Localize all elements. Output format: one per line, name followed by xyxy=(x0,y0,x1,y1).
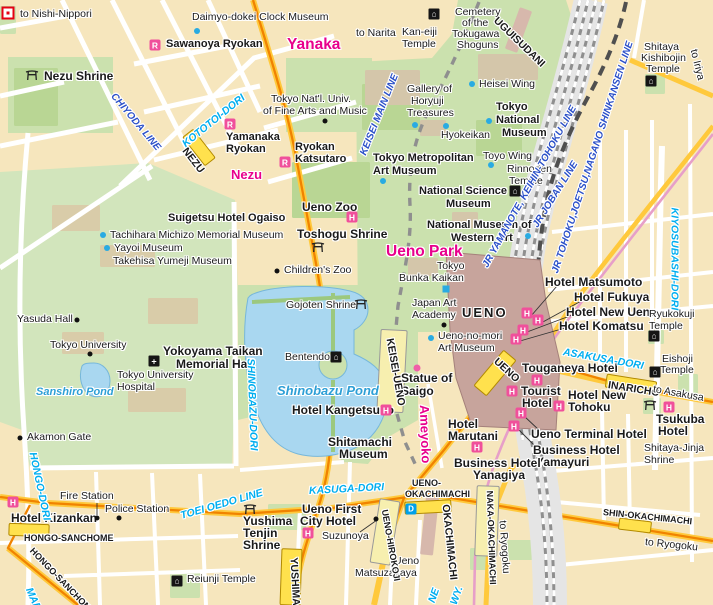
map-label: Hospital xyxy=(117,382,155,393)
museum-dot-icon xyxy=(525,233,531,239)
map-label: Gallery of xyxy=(407,84,452,95)
map-label: Temple xyxy=(660,365,694,376)
landmark-dot-icon xyxy=(95,516,100,521)
museum-dot-icon xyxy=(194,28,200,34)
temple-icon: ⌂ xyxy=(650,367,661,378)
map-label: Temple xyxy=(646,64,680,75)
map-label: Yasuda Hall xyxy=(17,314,73,325)
map-label: Temple xyxy=(402,39,436,50)
map-label: Hotel New Ueno xyxy=(566,306,657,319)
map-label: Hotel Fukuya xyxy=(574,291,649,304)
map-label: Tachihara Michizo Memorial Museum xyxy=(110,230,283,241)
hotel-icon: H xyxy=(664,402,675,413)
hotel-icon: H xyxy=(516,408,527,419)
hotel-icon: H xyxy=(522,308,533,319)
map-label: Shrine xyxy=(644,455,674,466)
shrine-torii-icon xyxy=(644,400,657,411)
map-label: to Narita xyxy=(356,28,396,39)
landmark-dot-icon xyxy=(88,352,93,357)
map-label: to Nishi-Nippori xyxy=(20,9,92,20)
museum-dot-icon xyxy=(488,162,494,168)
map-label: Ueno-no-mori xyxy=(438,331,502,342)
map-label: Reiunji Temple xyxy=(187,574,256,585)
map-label: Tokyo University xyxy=(50,340,126,351)
map-label: Ameyoko xyxy=(417,405,433,464)
map-label: Tokyo xyxy=(437,261,464,272)
ryokan-icon: R xyxy=(150,40,161,51)
map-label: Bentendo xyxy=(285,352,330,363)
map-label: Toshogu Shrine xyxy=(297,228,387,241)
map-label: Hotel xyxy=(658,425,688,438)
map-label: Nezu Shrine xyxy=(44,70,113,83)
museum-dot-icon xyxy=(380,178,386,184)
map-label: to Ryogoku xyxy=(497,520,512,574)
map-label: Shinobazu Pond xyxy=(277,384,379,398)
map-label: Gojoten Shrine xyxy=(286,300,356,311)
temple-icon: ⌂ xyxy=(510,186,521,197)
map-label: Tokyo xyxy=(496,102,528,114)
landmark-dot-icon xyxy=(75,318,80,323)
map-label: Museum xyxy=(339,448,388,461)
map-label: Japan Art xyxy=(412,298,456,309)
shrine-torii-icon xyxy=(244,504,257,515)
map-label: of Fine Arts and Music xyxy=(263,106,367,117)
map-label: Ryokan xyxy=(295,142,335,154)
temple-icon: ⌂ xyxy=(646,76,657,87)
rail-logo-icon xyxy=(2,7,15,20)
map-label: City Hotel xyxy=(300,515,356,528)
shrine-torii-icon xyxy=(355,299,368,310)
museum-dot-icon xyxy=(443,123,449,129)
ueno-area-map: to Nishi-NipporiDaimyo-dokei Clock Museu… xyxy=(0,0,713,605)
map-label: Shrine xyxy=(243,539,280,552)
hotel-icon: H xyxy=(472,442,483,453)
map-label: Nezu xyxy=(231,168,262,182)
temple-icon: ⌂ xyxy=(172,576,183,587)
station-label: HONGO-SANCHOME xyxy=(24,534,114,543)
map-label: National Science xyxy=(419,186,507,198)
map-label: Yayoi Museum xyxy=(114,243,183,254)
map-label: Statue of xyxy=(401,372,452,385)
map-label: Yanagiya xyxy=(473,469,525,482)
temple-icon: ⌂ xyxy=(649,331,660,342)
map-label: Heisei Wing xyxy=(479,79,535,90)
map-label: Art Museum xyxy=(373,166,437,178)
map-label: Akamon Gate xyxy=(27,432,91,443)
hall-square-icon xyxy=(443,286,450,293)
museum-dot-icon xyxy=(100,232,106,238)
map-label: Hotel Kangetsuso xyxy=(292,404,394,417)
temple-icon: ⌂ xyxy=(331,352,342,363)
building-icon: + xyxy=(149,356,160,367)
map-path xyxy=(245,286,387,456)
station-label: YUSHIMA xyxy=(287,557,301,605)
map-label: Suzunoya xyxy=(322,531,369,542)
map-label: Ueno Park xyxy=(386,244,463,260)
map-label: Hotel Komatsu xyxy=(559,320,644,333)
map-label: Suigetsu Hotel Ogaiso xyxy=(168,213,285,225)
map-label: Shoguns xyxy=(457,40,498,51)
museum-dot-icon xyxy=(104,245,110,251)
hotel-icon: H xyxy=(381,405,392,416)
landmark-dot-icon xyxy=(442,323,447,328)
map-label: National xyxy=(496,115,539,127)
map-label: Shitaya-Jinja xyxy=(644,443,704,454)
shrine-torii-icon xyxy=(312,242,325,253)
map-label: KIYOSUBASHI-DORI xyxy=(668,208,679,311)
landmark-dot-icon xyxy=(275,269,280,274)
map-label: Treasures xyxy=(407,108,454,119)
map-label: Tokyo University xyxy=(117,370,193,381)
map-label: Toyo Wing xyxy=(483,151,532,162)
map-label: Ryukokuji xyxy=(649,309,695,320)
map-label: Horyuji xyxy=(411,96,444,107)
station-label: UENO- xyxy=(412,479,441,488)
map-label: Art Museum xyxy=(438,343,495,354)
map-label: Bunka Kaikan xyxy=(399,273,464,284)
landmark-dot-icon xyxy=(117,516,122,521)
shrine-torii-icon xyxy=(26,70,39,81)
landmark-dot-icon xyxy=(374,517,379,522)
map-label: Tokyo Nat'l. Univ. xyxy=(271,94,351,105)
map-label: Yamayuri xyxy=(536,456,589,469)
map-label: Katsutaro xyxy=(295,154,346,166)
station-label: NAKA-OKACHIMACHI xyxy=(484,491,497,585)
ryokan-icon: R xyxy=(225,119,236,130)
museum-dot-icon xyxy=(469,81,475,87)
map-label: Ueno Terminal Hotel xyxy=(531,428,647,441)
map-label: Yanaka xyxy=(287,37,340,53)
map-label: Hyokeikan xyxy=(441,130,490,141)
map-label: Daimyo-dokei Clock Museum xyxy=(192,12,329,23)
subway-d-icon: D xyxy=(406,504,417,515)
map-label: Sawanoya Ryokan xyxy=(166,39,263,51)
hotel-icon: H xyxy=(532,375,543,386)
hotel-icon: H xyxy=(533,315,544,326)
landmark-dot-icon xyxy=(18,436,23,441)
map-label: Fire Station xyxy=(60,491,114,502)
map-label: Sanshiro Pond xyxy=(36,387,114,399)
map-label: Kan-eiji xyxy=(402,27,437,38)
temple-icon: ⌂ xyxy=(429,9,440,20)
map-label: UENO xyxy=(462,306,508,320)
hotel-icon: H xyxy=(507,386,518,397)
museum-dot-icon xyxy=(412,122,418,128)
map-label: Tohoku xyxy=(568,401,610,414)
museum-dot-icon xyxy=(428,335,434,341)
map-label: Hotel Kizankan xyxy=(11,512,97,525)
hotel-icon: H xyxy=(8,497,19,508)
map-label: SHINOBAZU-DORI xyxy=(244,358,258,451)
map-label: Yamanaka xyxy=(226,132,280,144)
statue-dot-icon xyxy=(414,365,421,372)
map-label: Saigo xyxy=(401,385,434,398)
hotel-icon: H xyxy=(554,401,565,412)
map-label: Ryokan xyxy=(226,144,266,156)
map-label: Police Station xyxy=(105,504,169,515)
station-label: OKACHIMACHI xyxy=(405,490,470,499)
hotel-icon: H xyxy=(509,421,520,432)
hotel-icon: H xyxy=(303,528,314,539)
hotel-icon: H xyxy=(511,334,522,345)
map-label: Matsuzakaya xyxy=(355,568,417,579)
map-label: Children's Zoo xyxy=(284,265,351,276)
map-label: Tokyo Metropolitan xyxy=(373,153,474,165)
ryokan-icon: R xyxy=(280,157,291,168)
map-label: Hotel Matsumoto xyxy=(545,276,642,289)
museum-dot-icon xyxy=(486,118,492,124)
map-label: Yokoyama Taikan xyxy=(163,345,263,358)
map-label: Museum xyxy=(502,128,547,140)
map-label: Museum xyxy=(446,199,491,211)
map-label: Takehisa Yumeji Museum xyxy=(113,256,232,267)
map-shape xyxy=(148,298,198,324)
map-label: Academy xyxy=(412,310,456,321)
hotel-icon: H xyxy=(347,212,358,223)
map-label: Hotel xyxy=(522,397,552,410)
landmark-dot-icon xyxy=(323,119,328,124)
